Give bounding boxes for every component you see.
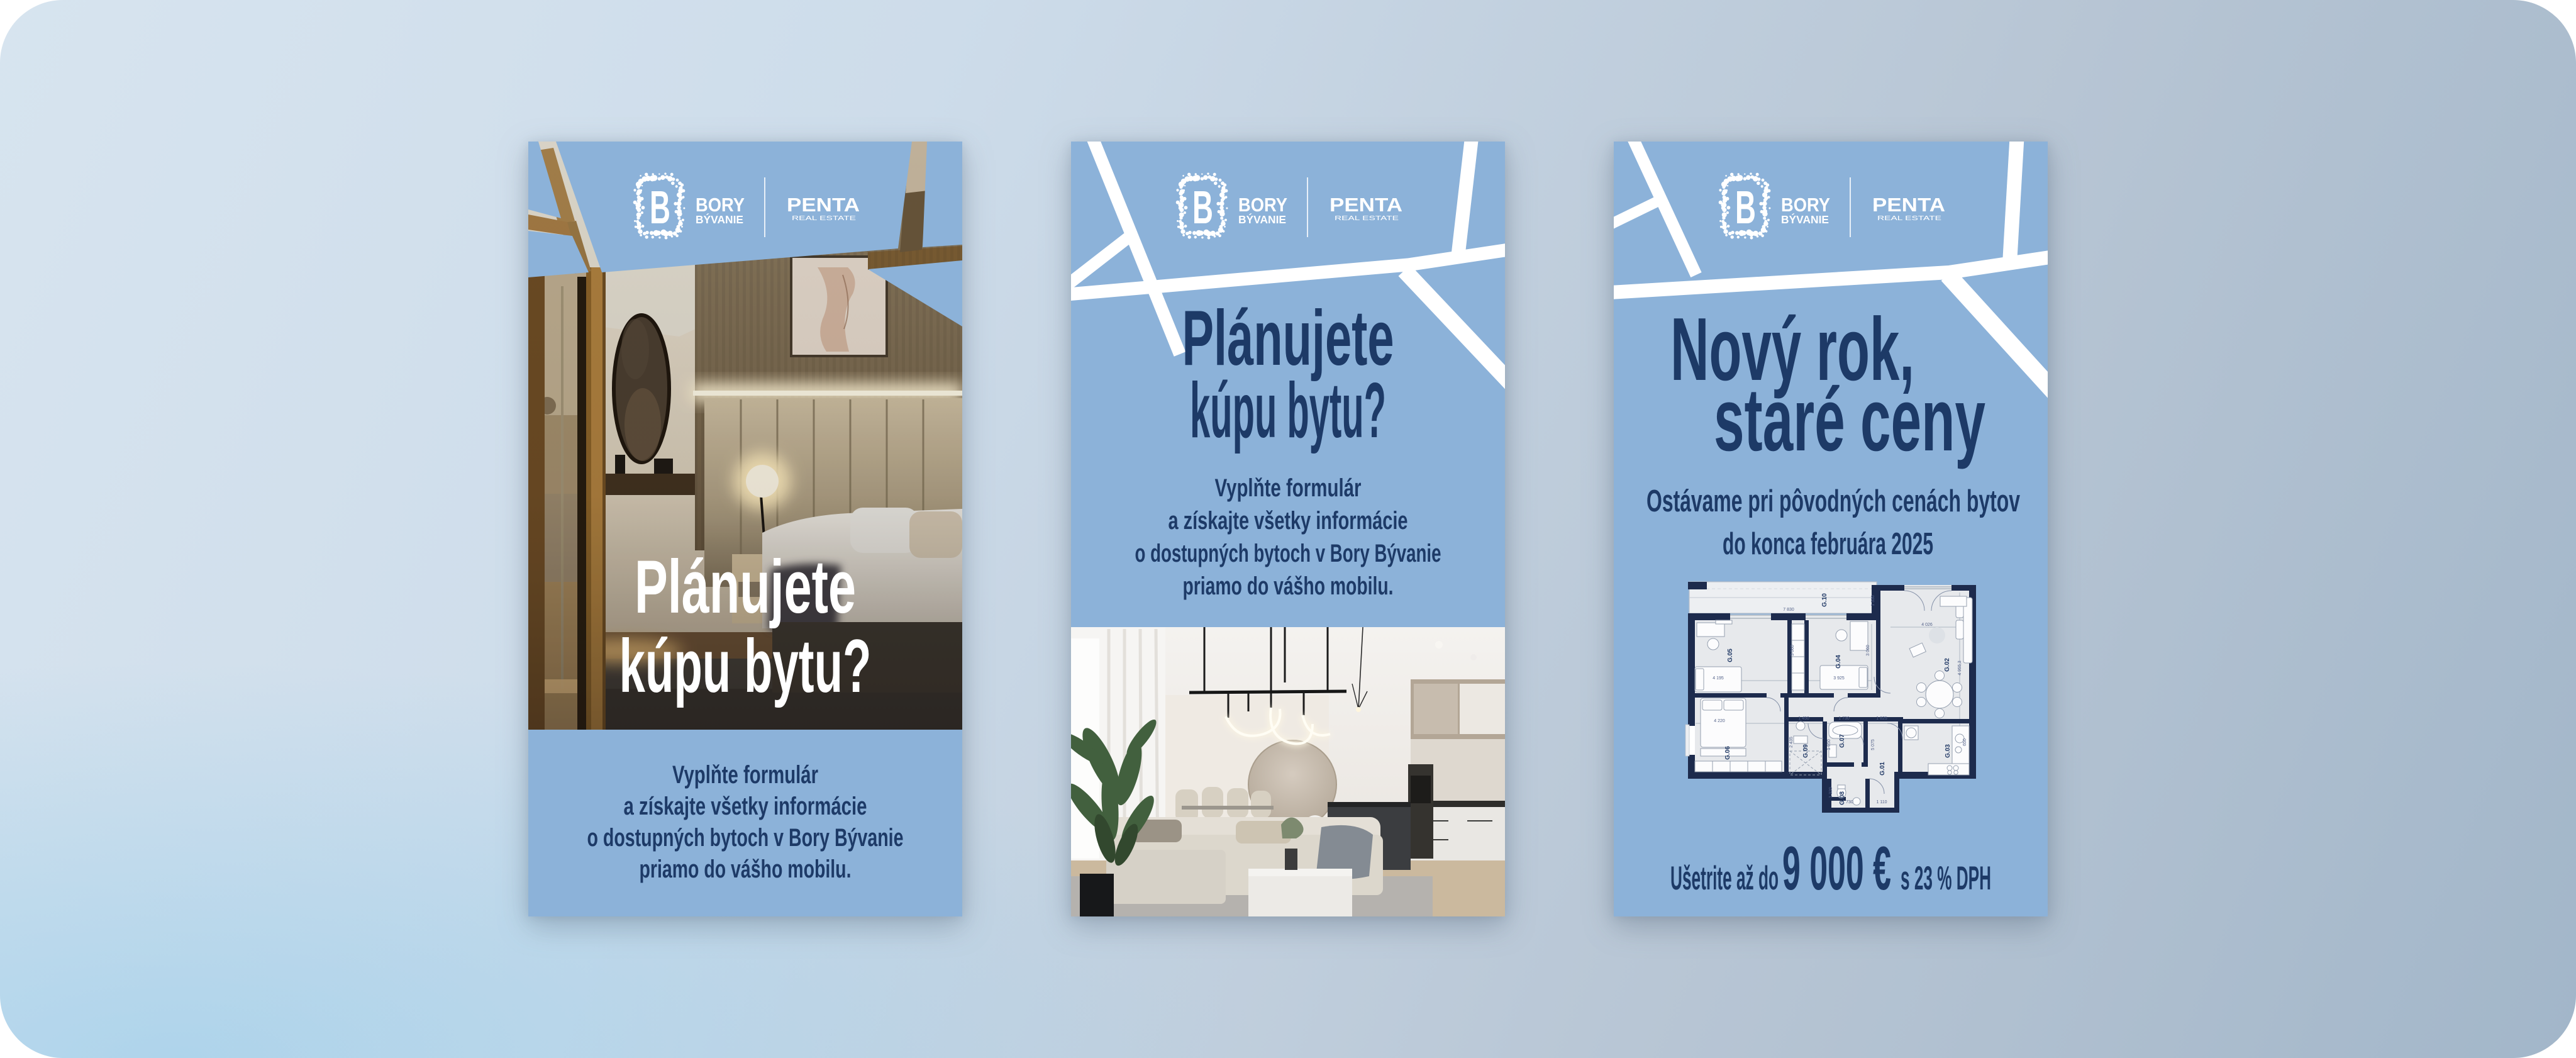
svg-text:REAL ESTATE: REAL ESTATE [792, 215, 856, 222]
svg-text:o dostupných bytoch v Bory Býv: o dostupných bytoch v Bory Bývanie [587, 824, 904, 852]
svg-text:B: B [1192, 181, 1213, 233]
svg-text:G.06: G.06 [1724, 746, 1731, 760]
svg-text:1 330: 1 330 [1871, 595, 1875, 606]
svg-text:650: 650 [1963, 738, 1967, 746]
svg-text:3 060: 3 060 [1866, 645, 1870, 656]
svg-text:G.10: G.10 [1821, 593, 1828, 607]
svg-text:4 955,3: 4 955,3 [1958, 660, 1962, 675]
svg-text:kúpu bytu?: kúpu bytu? [619, 624, 872, 708]
svg-text:4 026: 4 026 [1921, 623, 1933, 627]
svg-text:BORY: BORY [696, 194, 745, 216]
svg-text:BORY: BORY [1238, 194, 1287, 216]
svg-text:BORY: BORY [1781, 194, 1830, 216]
svg-text:2 435: 2 435 [1789, 737, 1794, 748]
svg-text:PENTA: PENTA [1872, 194, 1945, 216]
svg-text:Vyplňte formulár: Vyplňte formulár [672, 761, 818, 789]
svg-text:REAL ESTATE: REAL ESTATE [1877, 215, 1941, 222]
svg-text:BÝVANIE: BÝVANIE [696, 213, 743, 226]
svg-text:1 825: 1 825 [1876, 716, 1887, 721]
svg-text:7 830: 7 830 [1783, 608, 1794, 612]
svg-text:priamo do vášho mobilu.: priamo do vášho mobilu. [1183, 572, 1394, 600]
svg-text:kúpu bytu?: kúpu bytu? [1190, 367, 1386, 454]
svg-text:G.09: G.09 [1802, 744, 1809, 758]
svg-text:G.01: G.01 [1879, 762, 1886, 776]
svg-text:9 000 €: 9 000 € [1782, 833, 1891, 903]
svg-text:o dostupných bytoch v Bory Býv: o dostupných bytoch v Bory Bývanie [1135, 540, 1441, 567]
svg-text:Plánujete: Plánujete [635, 545, 856, 629]
svg-text:5 075: 5 075 [1871, 739, 1875, 750]
svg-text:1 730: 1 730 [1838, 716, 1850, 721]
svg-text:G.02: G.02 [1944, 658, 1951, 672]
svg-text:BÝVANIE: BÝVANIE [1781, 213, 1829, 226]
svg-text:3 060: 3 060 [1790, 645, 1795, 656]
svg-text:Ostávame pri pôvodných cenách: Ostávame pri pôvodných cenách bytov [1646, 484, 2020, 518]
svg-text:G.05: G.05 [1727, 649, 1734, 662]
svg-text:BÝVANIE: BÝVANIE [1238, 213, 1286, 226]
svg-text:a získajte všetky informácie: a získajte všetky informácie [1169, 507, 1408, 535]
svg-text:1 950: 1 950 [1827, 739, 1831, 750]
svg-text:G.07: G.07 [1839, 734, 1846, 748]
svg-text:Ušetrite až do: Ušetrite až do [1670, 860, 1779, 897]
svg-text:priamo do vášho mobilu.: priamo do vášho mobilu. [640, 855, 852, 883]
svg-text:a získajte všetky informácie: a získajte všetky informácie [624, 793, 867, 820]
svg-text:Vyplňte formulár: Vyplňte formulár [1215, 474, 1362, 502]
svg-text:G.03: G.03 [1945, 744, 1951, 758]
svg-text:B: B [1735, 181, 1756, 233]
svg-text:PENTA: PENTA [787, 194, 860, 216]
svg-text:1 730: 1 730 [1842, 800, 1853, 805]
svg-text:staré ceny: staré ceny [1714, 370, 1985, 470]
svg-text:G.04: G.04 [1835, 655, 1842, 669]
svg-text:B: B [650, 181, 670, 233]
svg-text:3 925: 3 925 [1833, 676, 1845, 681]
svg-text:4 195: 4 195 [1713, 676, 1724, 681]
svg-text:1 450: 1 450 [1798, 716, 1809, 721]
svg-text:s 23 % DPH: s 23 % DPH [1901, 860, 1991, 897]
svg-text:REAL ESTATE: REAL ESTATE [1335, 215, 1399, 222]
svg-text:1 320: 1 320 [1829, 787, 1833, 798]
svg-text:4 220: 4 220 [1714, 719, 1725, 723]
svg-text:PENTA: PENTA [1330, 194, 1402, 216]
svg-text:1 110: 1 110 [1877, 800, 1887, 805]
svg-text:do konca februára 2025: do konca februára 2025 [1723, 527, 1933, 561]
